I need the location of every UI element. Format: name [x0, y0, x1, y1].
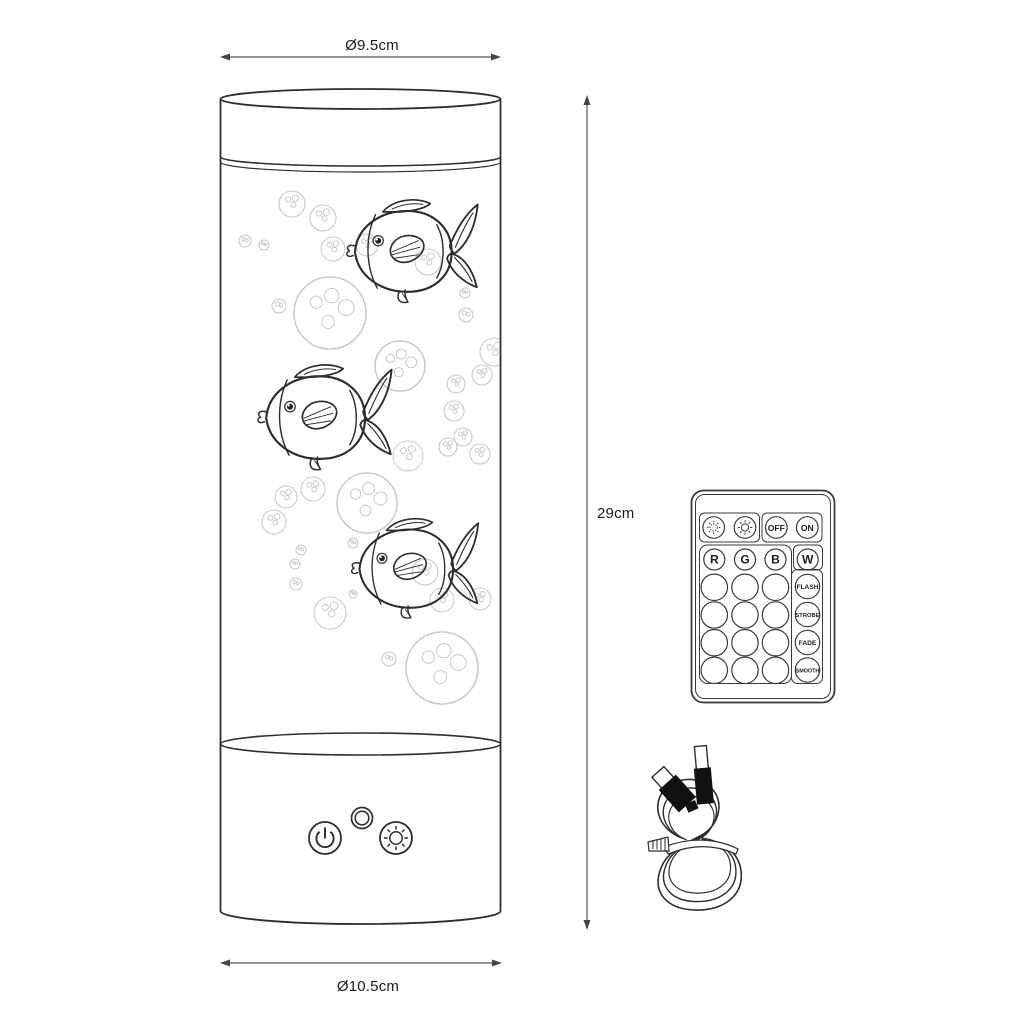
- bubble: [428, 253, 434, 259]
- bubble: [261, 242, 264, 245]
- bubble: [291, 202, 296, 207]
- usb-c-connector-icon: [692, 745, 714, 804]
- bubble: [472, 365, 492, 385]
- bubble: [322, 604, 328, 610]
- remote-flash-button: FLASH: [795, 574, 819, 598]
- blank-color-button: [762, 657, 788, 683]
- bottom-diameter-label: Ø10.5cm: [337, 978, 399, 995]
- height-dimension: 29cm: [584, 95, 635, 930]
- ir-sensor-icon: [352, 808, 373, 829]
- bubble: [307, 482, 312, 487]
- fish-lamp: [221, 89, 501, 924]
- bubble: [482, 368, 487, 373]
- bubble: [281, 491, 285, 495]
- bubble: [296, 582, 299, 585]
- bubble: [275, 302, 279, 306]
- remote-b-button: B: [765, 549, 786, 570]
- bubble: [454, 404, 459, 409]
- bubble: [314, 597, 346, 629]
- bubble: [449, 406, 453, 410]
- remote-off-button: OFF: [766, 517, 788, 539]
- blank-color-buttons: [701, 574, 789, 683]
- bubble: [360, 505, 371, 516]
- bubble: [422, 255, 427, 260]
- fish-illustration-bottom: [352, 519, 479, 618]
- bubble: [301, 548, 304, 551]
- bubble: [330, 602, 338, 610]
- blank-color-button: [701, 574, 727, 600]
- lamp-lid-bottom-edge: [221, 157, 501, 166]
- bubble: [350, 540, 353, 543]
- bubble: [292, 195, 298, 201]
- bubble: [427, 260, 432, 265]
- product-diagram: Ø9.5cm 29cm Ø10.5cm: [0, 0, 1024, 1024]
- bubble: [462, 436, 466, 440]
- bubble: [430, 588, 454, 612]
- bubble: [321, 237, 345, 261]
- w-button-label: W: [802, 553, 814, 567]
- bubble: [444, 401, 464, 421]
- bubble: [245, 239, 248, 242]
- blank-color-button: [701, 657, 727, 683]
- bubble: [310, 296, 322, 308]
- blank-color-button: [701, 630, 727, 656]
- bubble: [353, 541, 356, 544]
- blank-color-button: [762, 574, 788, 600]
- blank-color-button: [732, 574, 758, 600]
- blank-color-button: [732, 630, 758, 656]
- bubble: [363, 483, 375, 495]
- bubble: [465, 291, 468, 294]
- bubble: [353, 593, 355, 595]
- bottom-diameter-dimension: Ø10.5cm: [220, 960, 502, 996]
- bubble: [268, 515, 273, 520]
- bubble: [374, 492, 387, 505]
- bubble: [328, 611, 334, 617]
- bubble: [479, 597, 483, 601]
- blank-color-button: [762, 630, 788, 656]
- bubble: [385, 655, 389, 659]
- bubble: [313, 481, 319, 487]
- bubble: [327, 242, 332, 247]
- bubble: [481, 374, 485, 378]
- blank-color-button: [732, 602, 758, 628]
- lamp-lid-top: [221, 89, 501, 109]
- bubble: [470, 444, 490, 464]
- bubbles: [239, 191, 508, 704]
- bubble: [462, 311, 466, 315]
- strobe-button-label: STROBE: [795, 613, 819, 619]
- remote-on-button: ON: [797, 517, 819, 539]
- bubble: [317, 211, 322, 216]
- sun-dim-icon: [706, 520, 721, 535]
- bubble: [480, 338, 508, 366]
- bubble: [408, 446, 415, 453]
- top-diameter-dimension: Ø9.5cm: [220, 37, 501, 61]
- remote-fade-button: FADE: [795, 630, 819, 654]
- bubble: [475, 449, 479, 453]
- fish-illustrations: [258, 200, 478, 618]
- bubble: [295, 562, 298, 565]
- remote-control: OFF ON R G B W FLASH: [692, 491, 835, 703]
- bubble: [462, 290, 465, 293]
- bubble: [273, 520, 278, 525]
- bubble: [439, 438, 457, 456]
- bubble: [459, 432, 463, 436]
- bubble: [301, 477, 325, 501]
- blank-color-button: [701, 602, 727, 628]
- bubble: [322, 316, 335, 329]
- bubble: [394, 368, 403, 377]
- bubble: [487, 344, 493, 350]
- arrow-up-icon: [584, 95, 591, 105]
- remote-strobe-button: STROBE: [795, 602, 819, 626]
- bubble: [466, 313, 470, 317]
- fade-button-label: FADE: [799, 640, 817, 647]
- remote-r-button: R: [704, 549, 725, 570]
- arrow-right-icon: [491, 54, 501, 61]
- bubble: [448, 441, 452, 445]
- b-button-label: B: [771, 553, 780, 567]
- top-diameter-label: Ø9.5cm: [345, 37, 399, 54]
- bubble: [362, 239, 366, 243]
- blank-color-button: [762, 602, 788, 628]
- bubble: [351, 489, 361, 499]
- bubble: [441, 598, 446, 603]
- fish-illustration-middle: [258, 365, 392, 470]
- bubble: [292, 561, 295, 564]
- bubble: [415, 249, 441, 275]
- bubble: [477, 370, 481, 374]
- sun-bright-icon: [738, 520, 753, 535]
- g-button-label: G: [740, 553, 749, 567]
- off-button-label: OFF: [768, 523, 785, 533]
- blank-color-button: [732, 657, 758, 683]
- bubble: [434, 671, 447, 684]
- bubble: [424, 570, 429, 575]
- flash-button-label: FLASH: [797, 584, 819, 591]
- sun-icon: [384, 826, 408, 850]
- bubble: [456, 378, 460, 382]
- bubble: [274, 514, 280, 520]
- bubble: [294, 277, 366, 349]
- bubble: [396, 349, 406, 359]
- usb-cable-illustration: [648, 745, 741, 910]
- remote-g-button: G: [735, 549, 756, 570]
- bubble: [323, 209, 329, 215]
- lamp-base-rim: [221, 733, 501, 755]
- bubble: [333, 241, 339, 247]
- bubble: [407, 454, 413, 460]
- bubble: [279, 304, 283, 308]
- smooth-button-label: SMOOTH: [796, 668, 820, 674]
- bubble: [286, 197, 291, 202]
- remote-w-button: W: [797, 549, 818, 570]
- bubble: [437, 644, 451, 658]
- bubble: [285, 495, 289, 499]
- bubble: [493, 350, 499, 356]
- bubble: [338, 300, 354, 316]
- power-button: [309, 822, 341, 854]
- bubble: [279, 191, 305, 217]
- bubble: [422, 651, 434, 663]
- remote-smooth-button: SMOOTH: [795, 658, 819, 682]
- bubble: [453, 410, 457, 414]
- bubble: [479, 453, 483, 457]
- product-diagram-page: Ø9.5cm 29cm Ø10.5cm: [0, 0, 1024, 1024]
- bubble: [389, 657, 393, 661]
- bubble: [463, 431, 467, 435]
- bubble: [480, 591, 485, 596]
- bubble: [412, 559, 438, 585]
- arrow-left-icon: [220, 960, 230, 967]
- bubble: [406, 357, 417, 368]
- bubble: [450, 655, 466, 671]
- bubble: [386, 354, 395, 363]
- bubble: [275, 486, 297, 508]
- remote-brightness-down-button: [703, 517, 725, 539]
- lamp-bottom-edge: [221, 911, 501, 924]
- base-controls: [309, 808, 412, 855]
- bubble: [444, 442, 448, 446]
- bubble: [480, 447, 485, 452]
- r-button-label: R: [710, 553, 719, 567]
- brightness-button: [380, 822, 412, 854]
- bubble: [401, 448, 407, 454]
- height-label: 29cm: [597, 505, 634, 522]
- arrow-right-icon: [492, 960, 502, 967]
- fish-illustration-top: [347, 200, 478, 303]
- bubble: [264, 243, 267, 246]
- on-button-label: ON: [801, 523, 814, 533]
- bubble: [406, 632, 478, 704]
- bubble: [310, 205, 336, 231]
- bubble: [469, 588, 491, 610]
- arrow-down-icon: [584, 920, 591, 930]
- remote-brightness-up-button: [734, 517, 756, 539]
- bubble: [298, 547, 301, 550]
- bubble: [332, 247, 337, 252]
- bubble: [242, 238, 245, 241]
- bubble: [375, 341, 425, 391]
- power-icon: [316, 828, 333, 848]
- bubble: [325, 289, 339, 303]
- arrow-left-icon: [220, 54, 230, 61]
- bubble: [322, 216, 327, 221]
- bubble: [447, 375, 465, 393]
- bubble: [293, 581, 296, 584]
- bubble: [452, 379, 456, 383]
- bubble: [312, 487, 317, 492]
- bubble: [455, 383, 459, 387]
- bubble: [447, 446, 451, 450]
- bubble: [337, 473, 397, 533]
- bubble: [393, 441, 423, 471]
- bubble: [286, 489, 291, 494]
- bubble: [262, 510, 286, 534]
